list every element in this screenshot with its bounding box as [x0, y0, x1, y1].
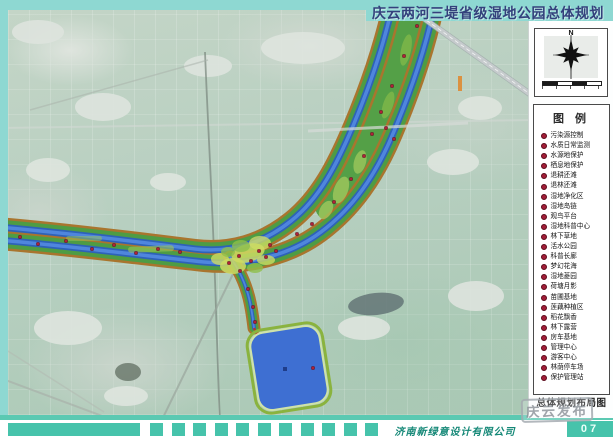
footer-band: 济南新绿意设计有限公司 07 [0, 420, 613, 438]
feature-marker-dot [258, 250, 261, 253]
legend-item: 活水公园 [541, 242, 609, 252]
legend-item-label: 湿地净化区 [551, 192, 584, 202]
feature-marker-dot [275, 250, 278, 253]
legend-item-label: 退耕还滩 [551, 171, 577, 181]
feature-marker-dot [91, 248, 94, 251]
legend-item-label: 管理中心 [551, 343, 577, 353]
footer-teal-square [258, 423, 271, 436]
road-label-mark [458, 76, 462, 91]
compass-rose-icon [551, 35, 591, 79]
legend-item-label: 退林还滩 [551, 181, 577, 191]
legend-item: 水质日常监测 [541, 141, 609, 151]
design-company-name: 济南新绿意设计有限公司 [386, 423, 524, 438]
legend-bullet-icon [541, 305, 547, 311]
feature-marker-dot [157, 248, 160, 251]
legend-bullet-icon [541, 264, 547, 270]
legend-bullet-icon [541, 184, 547, 190]
legend-item-label: 莲藕种植区 [551, 303, 584, 313]
legend-item: 栖息地保护 [541, 161, 609, 171]
legend-bullet-icon [541, 315, 547, 321]
footer-teal-square [279, 423, 292, 436]
wetland-corridor [8, 10, 436, 263]
satellite-planning-map [8, 10, 528, 415]
legend-item-label: 林下露营 [551, 323, 577, 333]
scale-bar-ticks [542, 86, 600, 89]
legend-bullet-icon [541, 173, 547, 179]
footer-teal-square [150, 423, 163, 436]
feature-marker-dot [37, 243, 40, 246]
feature-marker-dot [254, 321, 257, 324]
page-title: 庆云两河三堤省级湿地公园总体规划 [372, 3, 613, 23]
footer-teal-square [322, 423, 335, 436]
legend-bullet-icon [541, 355, 547, 361]
feature-marker-dot [250, 260, 253, 263]
side-panel: N 图 例 污染源控制水质日常监测水源地保护栖息地保护退耕还滩退林还滩湿地净化区… [528, 21, 613, 418]
legend-bullet-icon [541, 325, 547, 331]
feature-marker-dot [391, 85, 394, 88]
legend-bullet-icon [541, 194, 547, 200]
legend-item-label: 林荫停车场 [551, 363, 584, 373]
page-number: 07 [567, 421, 613, 437]
legend-bullet-icon [541, 244, 547, 250]
feature-marker-dot [333, 201, 336, 204]
feature-marker-dot [113, 244, 116, 247]
legend-item-label: 林下草地 [551, 232, 577, 242]
footer-teal-square [236, 423, 249, 436]
feature-marker-dot [238, 255, 241, 258]
legend-bullet-icon [541, 375, 547, 381]
compass-box: N [534, 28, 608, 97]
footer-teal-square [172, 423, 185, 436]
footer-teal-square [301, 423, 314, 436]
legend-bullet-icon [541, 254, 547, 260]
map-drawing [8, 10, 528, 415]
legend-item-label: 水质日常监测 [551, 141, 591, 151]
feature-marker-dot [403, 55, 406, 58]
legend-item: 林下草地 [541, 232, 609, 242]
feature-marker-dot [239, 270, 242, 273]
legend-bullet-icon [541, 204, 547, 210]
legend-item-label: 稻花飘香 [551, 313, 577, 323]
legend-item: 林下露营 [541, 323, 609, 333]
legend-bullet-icon [541, 224, 547, 230]
feature-marker-dot [19, 236, 22, 239]
legend-bullet-icon [541, 295, 547, 301]
feature-marker-dot [416, 25, 419, 28]
feature-marker-dot [65, 240, 68, 243]
legend-item: 游客中心 [541, 353, 609, 363]
feature-marker-dot [350, 178, 353, 181]
feature-marker-dot [269, 244, 272, 247]
legend-item-label: 游客中心 [551, 353, 577, 363]
legend-item-label: 保护管理站 [551, 373, 584, 383]
legend-bullet-icon [541, 133, 547, 139]
feature-marker-dot [179, 251, 182, 254]
feature-marker-dot [247, 288, 250, 291]
legend-bullet-icon [541, 153, 547, 159]
legend-item-label: 荷塘月影 [551, 282, 577, 292]
legend-list: 污染源控制水质日常监测水源地保护栖息地保护退耕还滩退林还滩湿地净化区湿地岛链观鸟… [541, 131, 609, 383]
feature-marker-dot [380, 111, 383, 114]
watermark-stamp: 庆云发布 [521, 397, 594, 423]
legend-item-label: 梦幻花海 [551, 262, 577, 272]
feature-marker-dot [312, 367, 315, 370]
feature-marker-dot [296, 233, 299, 236]
feature-marker-dot [363, 155, 366, 158]
legend-item: 梦幻花海 [541, 262, 609, 272]
legend-bullet-icon [541, 214, 547, 220]
legend-item: 莲藕种植区 [541, 303, 609, 313]
legend-item: 林荫停车场 [541, 363, 609, 373]
legend-item-label: 科普长廊 [551, 252, 577, 262]
legend-item: 苗圃基地 [541, 293, 609, 303]
legend-item-label: 污染源控制 [551, 131, 584, 141]
legend-item-label: 水源地保护 [551, 151, 584, 161]
reservoir [245, 321, 333, 415]
feature-marker-dot [371, 133, 374, 136]
legend-item: 房车基地 [541, 333, 609, 343]
legend-item: 污染源控制 [541, 131, 609, 141]
legend-item-label: 湿地菱园 [551, 272, 577, 282]
legend-title: 图 例 [534, 110, 609, 126]
legend-item-label: 栖息地保护 [551, 161, 584, 171]
feature-marker-dot [393, 138, 396, 141]
legend-bullet-icon [541, 345, 547, 351]
footer-teal-bar [8, 423, 140, 436]
legend-item-label: 湿地岛链 [551, 202, 577, 212]
legend-item: 观鸟平台 [541, 212, 609, 222]
legend-item: 稻花飘香 [541, 313, 609, 323]
footer-teal-square [193, 423, 206, 436]
frame-left-border [0, 0, 8, 416]
legend-bullet-icon [541, 234, 547, 240]
feature-marker-dot [252, 306, 255, 309]
feature-marker-dot [385, 127, 388, 130]
legend-item: 湿地岛链 [541, 202, 609, 212]
legend-bullet-icon [541, 163, 547, 169]
legend-item-label: 苗圃基地 [551, 293, 577, 303]
planning-poster-page: 庆云两河三堤省级湿地公园总体规划 N 图 例 污染源控制水质日常监测水源地保护栖… [0, 0, 613, 438]
feature-marker-dot [311, 223, 314, 226]
legend-item: 科普长廊 [541, 252, 609, 262]
legend-bullet-icon [541, 365, 547, 371]
legend-bullet-icon [541, 284, 547, 290]
feature-marker-dot [265, 256, 268, 259]
feature-marker-dot [135, 252, 138, 255]
legend-item: 荷塘月影 [541, 282, 609, 292]
legend-item: 湿地净化区 [541, 192, 609, 202]
footer-teal-square [215, 423, 228, 436]
legend-item-label: 活水公园 [551, 242, 577, 252]
legend-bullet-icon [541, 143, 547, 149]
legend-bullet-icon [541, 274, 547, 280]
legend-bullet-icon [541, 335, 547, 341]
reservoir-marker [283, 367, 287, 371]
legend-box: 图 例 污染源控制水质日常监测水源地保护栖息地保护退耕还滩退林还滩湿地净化区湿地… [533, 104, 610, 395]
footer-teal-square [365, 423, 378, 436]
legend-item: 退林还滩 [541, 181, 609, 191]
legend-item: 保护管理站 [541, 373, 609, 383]
legend-item: 退耕还滩 [541, 171, 609, 181]
legend-item-label: 观鸟平台 [551, 212, 577, 222]
legend-item: 水源地保护 [541, 151, 609, 161]
legend-item: 湿地科普中心 [541, 222, 609, 232]
feature-marker-dot [228, 262, 231, 265]
legend-item-label: 房车基地 [551, 333, 577, 343]
legend-item: 湿地菱园 [541, 272, 609, 282]
legend-item-label: 湿地科普中心 [551, 222, 591, 232]
footer-teal-square [344, 423, 357, 436]
legend-item: 管理中心 [541, 343, 609, 353]
